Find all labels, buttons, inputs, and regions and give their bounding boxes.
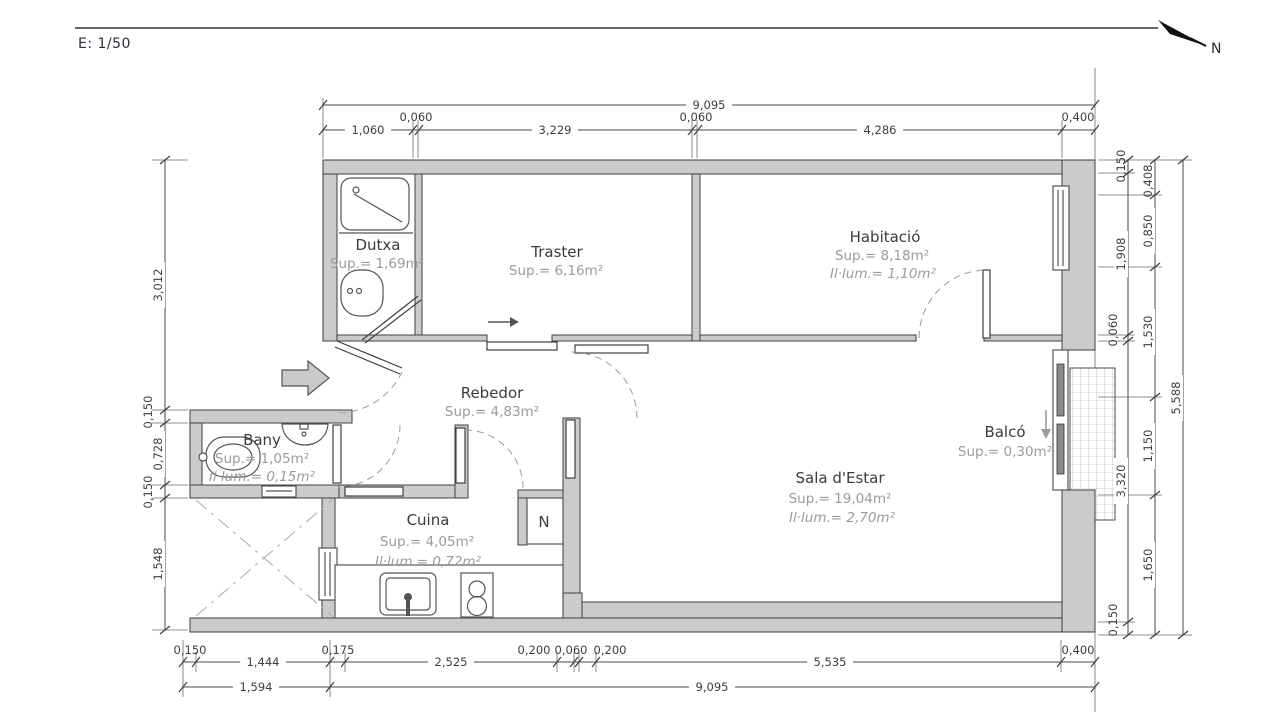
sala-sliding-door (575, 345, 648, 353)
balcony-door-window (1053, 350, 1068, 490)
dimension-label: 0,060 (680, 110, 713, 124)
dimension-label: 0,408 (1141, 165, 1155, 198)
room-sup-bany: Sup.= 1,05m² (215, 451, 309, 467)
floor-plan-page: E: 1/50 N (0, 0, 1280, 720)
entrance-arrow-icon (282, 361, 329, 395)
dimension-label: 0,060 (1106, 314, 1120, 347)
entrance-door (335, 341, 402, 413)
room-ilum-bany: Il·lum.= 0,15m² (209, 469, 316, 485)
header: E: 1/50 N (75, 20, 1221, 57)
kitchen-sink (380, 573, 436, 616)
dimension-label: 0,200 (594, 643, 627, 657)
partition-topblock-c (700, 335, 916, 341)
cooktop (461, 573, 493, 617)
dimension-label: 0,400 (1062, 110, 1095, 124)
traster-sliding-door (487, 317, 557, 350)
room-sup-sala: Sup.= 19,04m² (789, 491, 892, 507)
dimension-label: 1,650 (1141, 549, 1155, 582)
dimension-label: 2,525 (435, 655, 468, 669)
dimension-label: 3,229 (539, 123, 572, 137)
partition-traster-habitacio (692, 174, 700, 341)
room-sup-balco: Sup.= 0,30m² (958, 444, 1052, 460)
room-name-bany: Bany (243, 431, 281, 449)
dimension-label: 5,588 (1169, 382, 1183, 415)
wall-bany-top (190, 410, 352, 423)
room-sup-rebedor: Sup.= 4,83m² (445, 404, 539, 420)
room-ilum-sala: Il·lum.= 2,70m² (789, 510, 896, 526)
dimension-label: 0,850 (1141, 215, 1155, 248)
room-name-traster: Traster (530, 243, 583, 261)
room-name-sala: Sala d'Estar (795, 469, 885, 487)
dimension-label: 9,095 (696, 680, 729, 694)
partition-topblock-a (337, 335, 487, 341)
wall-bottom (190, 618, 1062, 632)
dimension-label: 0,150 (1106, 604, 1120, 637)
dimension-label: 1,548 (151, 548, 165, 581)
dimension-label: 0,728 (151, 438, 165, 471)
wall-top (323, 160, 1095, 174)
bany-door (333, 425, 400, 487)
dimension-label: 0,150 (1114, 150, 1128, 183)
dimension-label: 1,150 (1141, 430, 1155, 463)
room-name-cuina: Cuina (407, 511, 450, 529)
dimension-label: 0,150 (141, 396, 155, 429)
dimension-label: 0,150 (141, 476, 155, 509)
dimension-label: 1,908 (1114, 238, 1128, 271)
balcony-entry-arrow-icon (1041, 410, 1051, 439)
partition-topblock-d (984, 335, 1062, 341)
dimension-label: 1,444 (247, 655, 280, 669)
dimension-label: 3,320 (1114, 465, 1128, 498)
kitchen-niche-label: N (538, 513, 549, 531)
room-sup-dutxa: Sup.= 1,69m² (330, 256, 424, 272)
room-ilum-habitacio: Il·lum.= 1,10m² (830, 266, 937, 282)
room-name-habitacio: Habitació (850, 228, 921, 246)
dimension-label: 0,400 (1062, 643, 1095, 657)
room-name-balco: Balcó (984, 423, 1025, 441)
doors (333, 270, 990, 496)
dimension-label: 1,594 (240, 680, 273, 694)
room-ilum-cuina: Il·lum.= 0,72m² (375, 554, 482, 570)
dimension-label: 0,060 (555, 643, 588, 657)
kitchen-counter (335, 565, 563, 618)
bany-vent (262, 486, 296, 497)
dutxa-washbasin (341, 270, 383, 316)
shower-tray (339, 178, 413, 233)
traster-door-arrow-icon (510, 317, 519, 327)
wall-bottom-sala (565, 602, 1062, 618)
room-sup-habitacio: Sup.= 8,18m² (835, 248, 929, 264)
cuina-window (319, 548, 337, 600)
dimension-label: 0,060 (400, 110, 433, 124)
dimension-label: 0,150 (174, 643, 207, 657)
partition-topblock-b (552, 335, 692, 341)
dimension-label: 0,175 (322, 643, 355, 657)
dimension-label: 3,012 (151, 269, 165, 302)
dimension-label: 4,286 (864, 123, 897, 137)
scale-label: E: 1/50 (78, 36, 131, 52)
dimension-label: 1,060 (352, 123, 385, 137)
room-sup-traster: Sup.= 6,16m² (509, 263, 603, 279)
dimension-label: 1,530 (1141, 316, 1155, 349)
north-label: N (1211, 41, 1221, 57)
room-name-rebedor: Rebedor (461, 384, 524, 402)
dimension-label: 5,535 (814, 655, 847, 669)
room-sup-cuina: Sup.= 4,05m² (380, 534, 474, 550)
room-name-dutxa: Dutxa (355, 236, 400, 254)
floor-plan-drawing: E: 1/50 N (0, 0, 1280, 720)
habitacio-window (1053, 186, 1069, 270)
dimension-label: 0,200 (518, 643, 551, 657)
north-arrow-icon: N (1158, 20, 1221, 57)
bany-washbasin (282, 424, 328, 445)
wall-facade-right-lower (1062, 490, 1095, 632)
